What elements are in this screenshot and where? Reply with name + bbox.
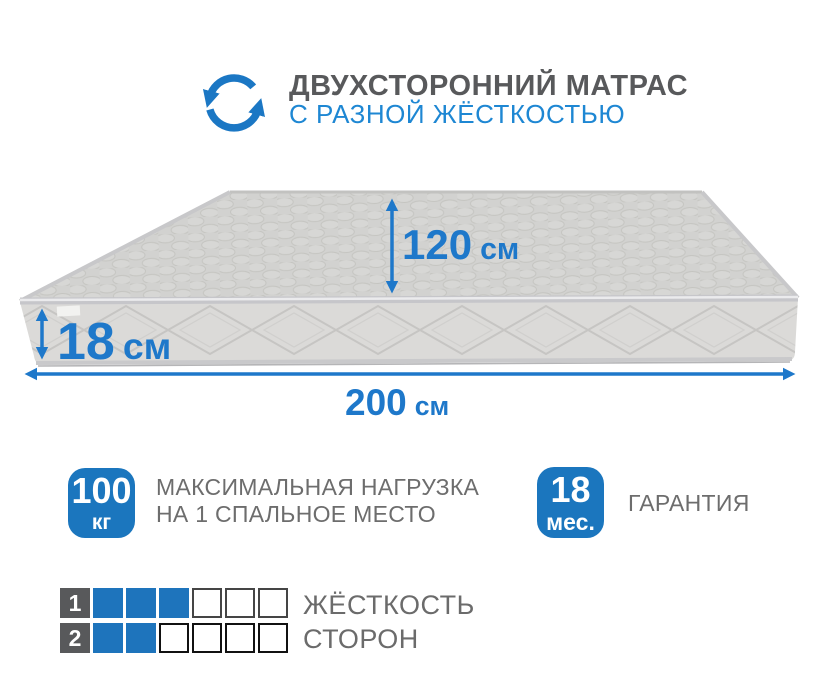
firmness-scale-side-1: [93, 588, 288, 618]
width-dimension-label: 200см: [345, 384, 449, 421]
firmness-cell: [126, 623, 156, 653]
warranty-caption: ГАРАНТИЯ: [628, 490, 750, 517]
mattress-infographic-page: ДВУХСТОРОННИЙ МАТРАС С РАЗНОЙ ЖЁСТКОСТЬЮ: [0, 0, 816, 700]
firmness-cell: [93, 588, 123, 618]
depth-dimension-label: 120см: [402, 224, 519, 266]
firmness-cell: [192, 623, 222, 653]
firmness-caption-line2: СТОРОН: [303, 626, 419, 653]
firmness-cell: [258, 588, 288, 618]
max-load-caption-line1: МАКСИМАЛЬНАЯ НАГРУЗКА: [156, 474, 479, 501]
firmness-cell: [225, 623, 255, 653]
side-2-number: 2: [60, 623, 90, 653]
warranty-value: 18: [550, 472, 590, 508]
depth-value: 120: [402, 221, 472, 268]
side-1-number: 1: [60, 588, 90, 618]
firmness-row-side-2: 2: [60, 623, 288, 653]
height-value: 18: [57, 313, 115, 371]
max-load-value: 100: [71, 473, 131, 509]
firmness-cell: [258, 623, 288, 653]
firmness-caption-line1: ЖЁСТКОСТЬ: [303, 592, 475, 619]
max-load-badge: 100 кг: [68, 468, 135, 538]
height-unit: см: [123, 325, 172, 367]
width-unit: см: [415, 391, 450, 421]
warranty-unit: мес.: [546, 511, 595, 534]
max-load-caption-line2: НА 1 СПАЛЬНОЕ МЕСТО: [156, 501, 479, 528]
firmness-cell: [192, 588, 222, 618]
max-load-caption: МАКСИМАЛЬНАЯ НАГРУЗКА НА 1 СПАЛЬНОЕ МЕСТ…: [156, 474, 479, 528]
firmness-cell: [225, 588, 255, 618]
max-load-unit: кг: [92, 512, 111, 533]
firmness-cell: [126, 588, 156, 618]
firmness-row-side-1: 1: [60, 588, 288, 618]
firmness-cell: [159, 623, 189, 653]
depth-unit: см: [480, 233, 519, 266]
firmness-scale-side-2: [93, 623, 288, 653]
warranty-badge: 18 мес.: [537, 467, 604, 538]
height-dimension-label: 18см: [57, 316, 171, 368]
firmness-cell: [93, 623, 123, 653]
width-value: 200: [345, 382, 407, 423]
firmness-cell: [159, 588, 189, 618]
